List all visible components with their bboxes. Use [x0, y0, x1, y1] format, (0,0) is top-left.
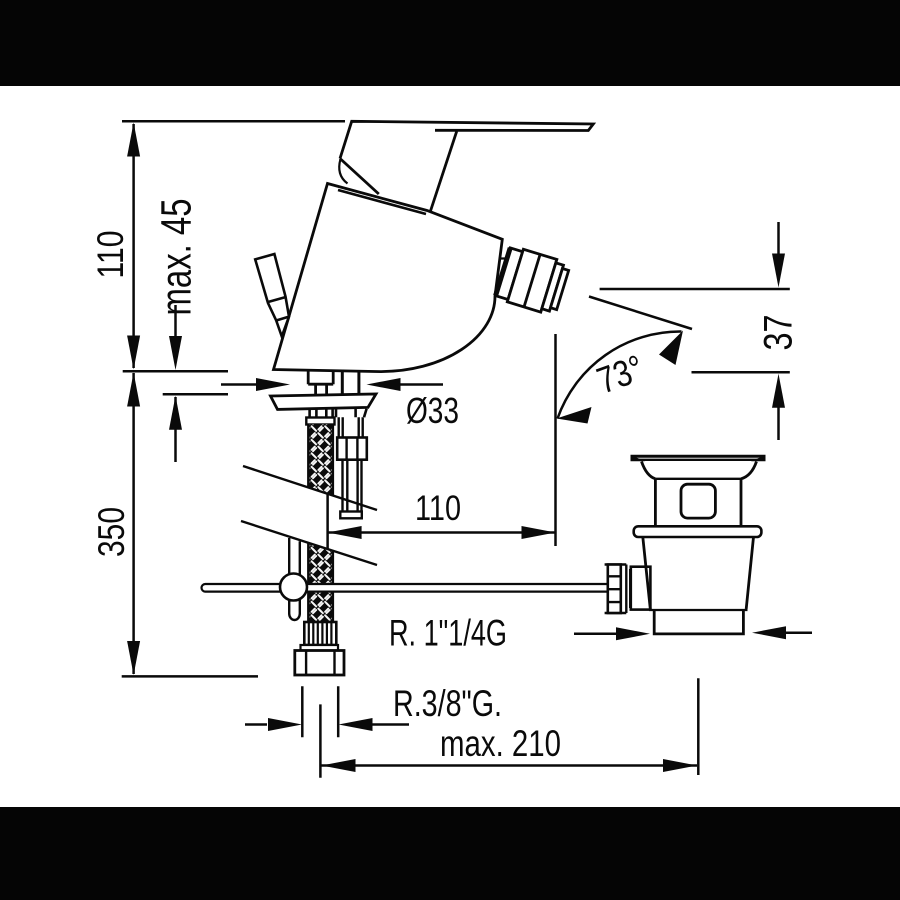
- svg-text:Ø33: Ø33: [406, 390, 459, 431]
- svg-text:110: 110: [415, 488, 461, 528]
- svg-text:max. 210: max. 210: [440, 723, 561, 764]
- svg-text:110: 110: [89, 231, 131, 279]
- svg-text:350: 350: [91, 507, 132, 557]
- svg-text:37: 37: [757, 315, 801, 351]
- svg-text:R. 1"1/4G: R. 1"1/4G: [389, 613, 507, 654]
- svg-text:max. 45: max. 45: [153, 199, 201, 316]
- svg-text:R.3/8"G.: R.3/8"G.: [393, 683, 502, 724]
